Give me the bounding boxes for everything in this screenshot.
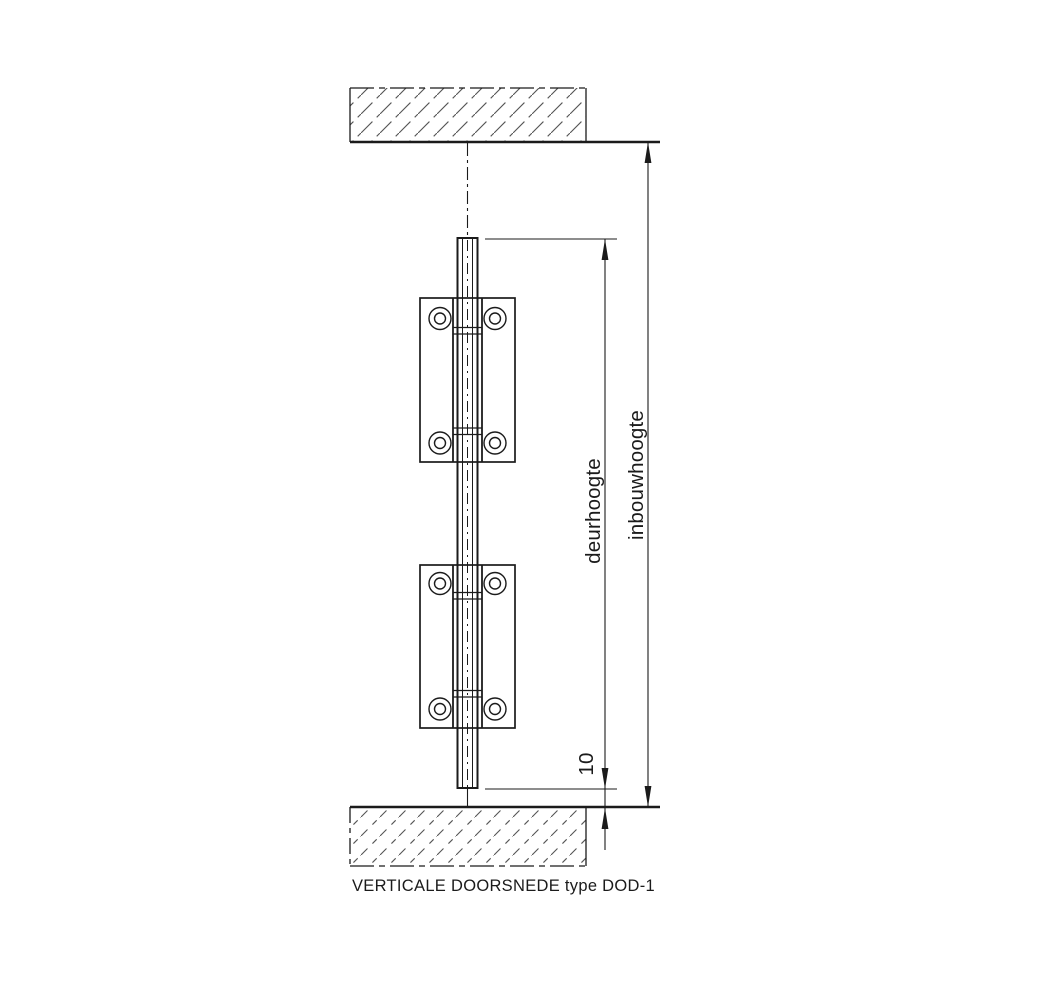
arrow-up-door-top <box>602 239 609 260</box>
drawing-caption: VERTICALE DOORSNEDE type DOD-1 <box>352 877 655 895</box>
floor-hatch-fill <box>350 807 586 866</box>
screw-outer <box>429 308 451 330</box>
screw-inner <box>435 438 446 449</box>
installation-height-label: inbouwhoogte <box>625 410 648 540</box>
arrow-down-door-bottom <box>602 768 609 789</box>
arrow-up-ceiling <box>645 142 652 163</box>
screw-outer <box>484 432 506 454</box>
ceiling-slab <box>350 88 660 142</box>
screw-outer <box>484 573 506 595</box>
screw-outer <box>429 698 451 720</box>
floor-slab <box>350 807 660 866</box>
drawing-page: deurhoogte 10 inbouwhoogte VERTICALE DOO… <box>0 0 1052 1000</box>
screw-inner <box>490 704 501 715</box>
ceiling-hatch-fill <box>350 88 586 142</box>
dimension-door-height: deurhoogte 10 <box>485 239 617 850</box>
screw-inner <box>490 578 501 589</box>
screw-outer <box>429 573 451 595</box>
screw-inner <box>435 704 446 715</box>
screw-inner <box>490 313 501 324</box>
screw-inner <box>435 313 446 324</box>
screw-outer <box>484 308 506 330</box>
arrow-down-floor <box>645 786 652 807</box>
door-height-label: deurhoogte <box>582 458 605 564</box>
screw-outer <box>429 432 451 454</box>
screw-inner <box>490 438 501 449</box>
dimension-installation-height: inbouwhoogte <box>625 142 651 807</box>
vertical-section-drawing: deurhoogte 10 inbouwhoogte VERTICALE DOO… <box>0 0 1052 1000</box>
arrow-up-floor-gap <box>602 808 609 829</box>
screw-inner <box>435 578 446 589</box>
screw-outer <box>484 698 506 720</box>
floor-gap-value: 10 <box>575 752 598 775</box>
